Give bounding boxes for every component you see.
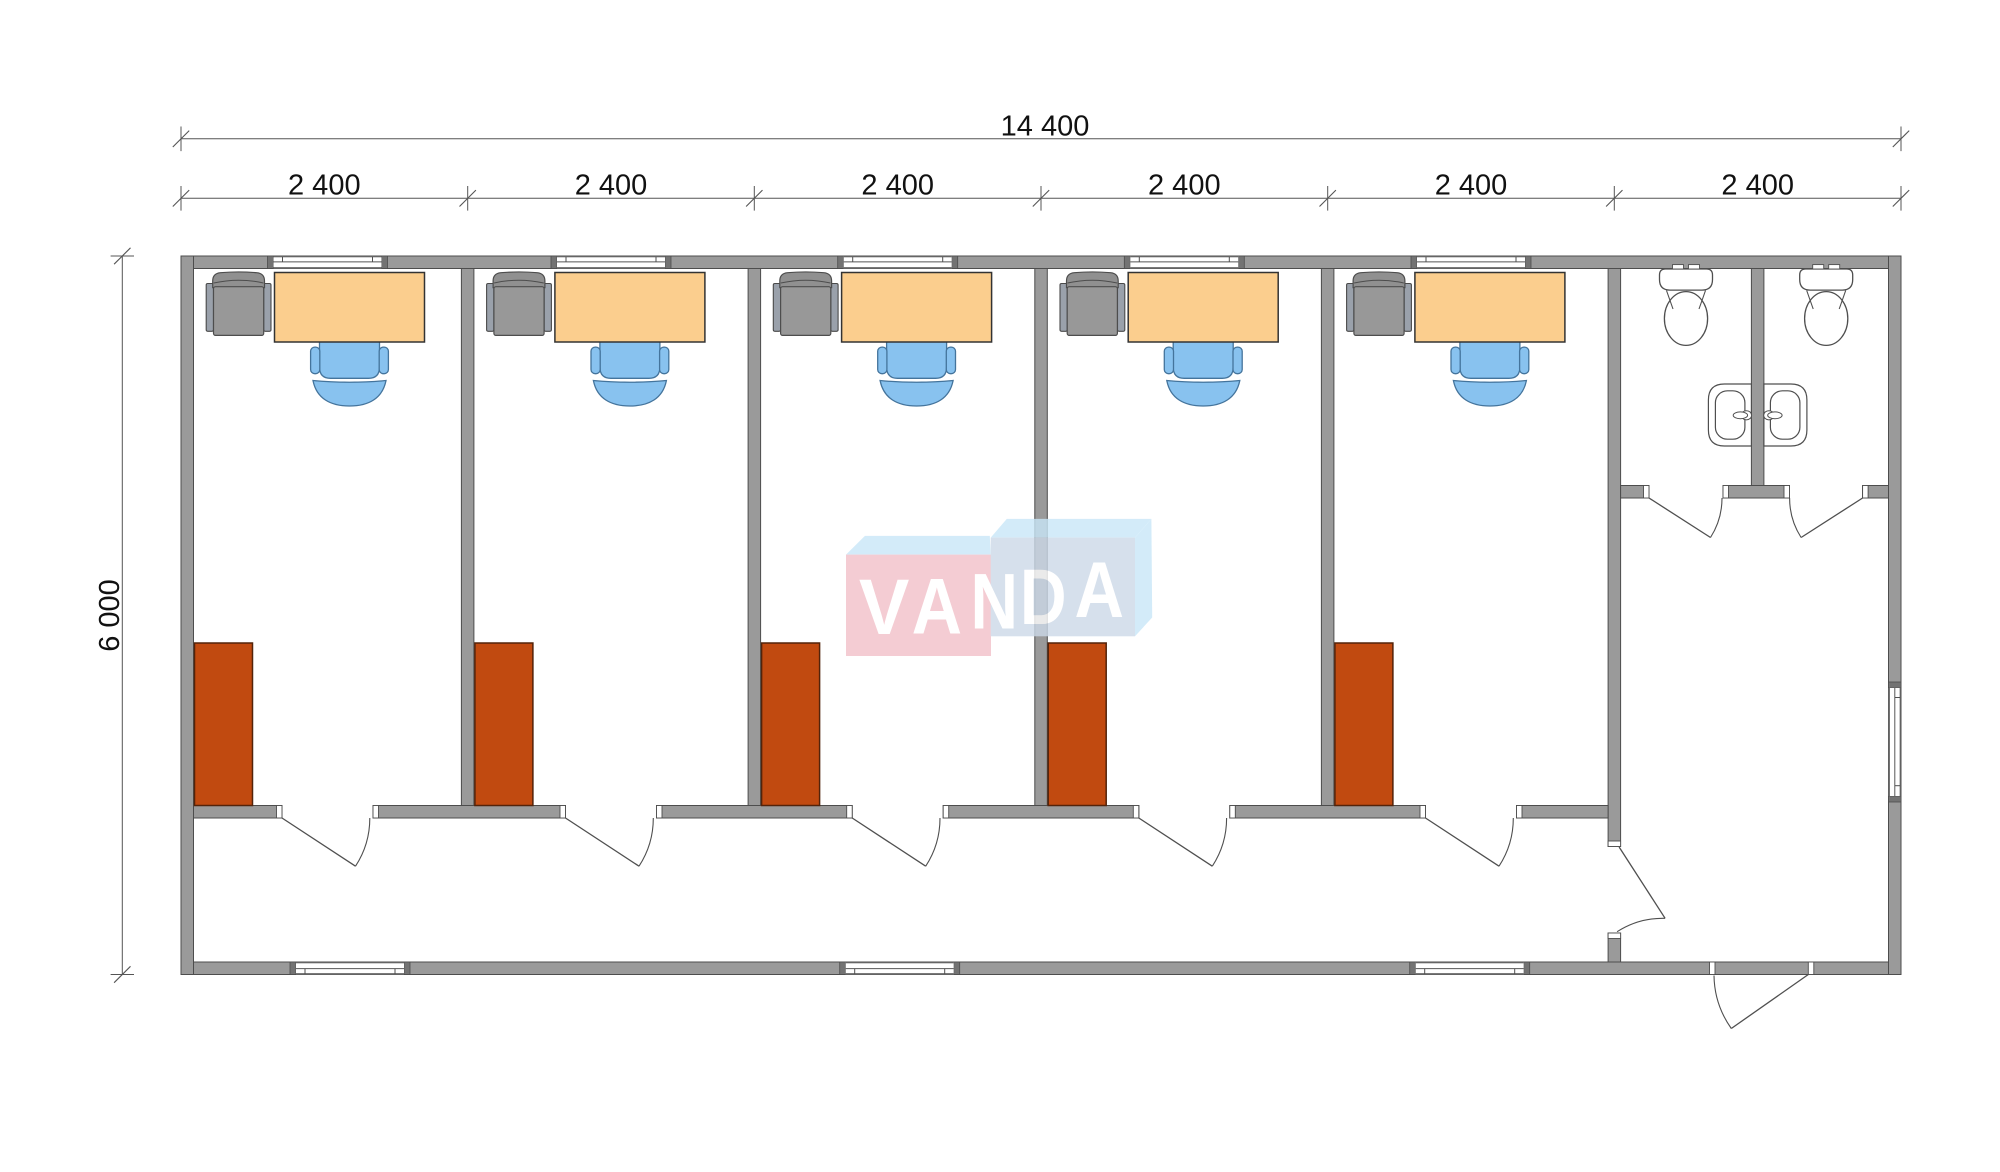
svg-text:2 400: 2 400 <box>1721 170 1794 202</box>
svg-text:A: A <box>1075 545 1125 634</box>
svg-text:6 000: 6 000 <box>94 579 126 652</box>
svg-text:D: D <box>1020 552 1067 641</box>
svg-text:2 400: 2 400 <box>575 170 648 202</box>
svg-text:V: V <box>859 562 910 651</box>
svg-text:2 400: 2 400 <box>1148 170 1221 202</box>
svg-text:2 400: 2 400 <box>861 170 934 202</box>
svg-text:A: A <box>912 562 963 651</box>
svg-text:N: N <box>971 557 1019 646</box>
svg-text:2 400: 2 400 <box>288 170 361 202</box>
svg-text:14 400: 14 400 <box>1001 111 1090 143</box>
svg-text:2 400: 2 400 <box>1435 170 1508 202</box>
